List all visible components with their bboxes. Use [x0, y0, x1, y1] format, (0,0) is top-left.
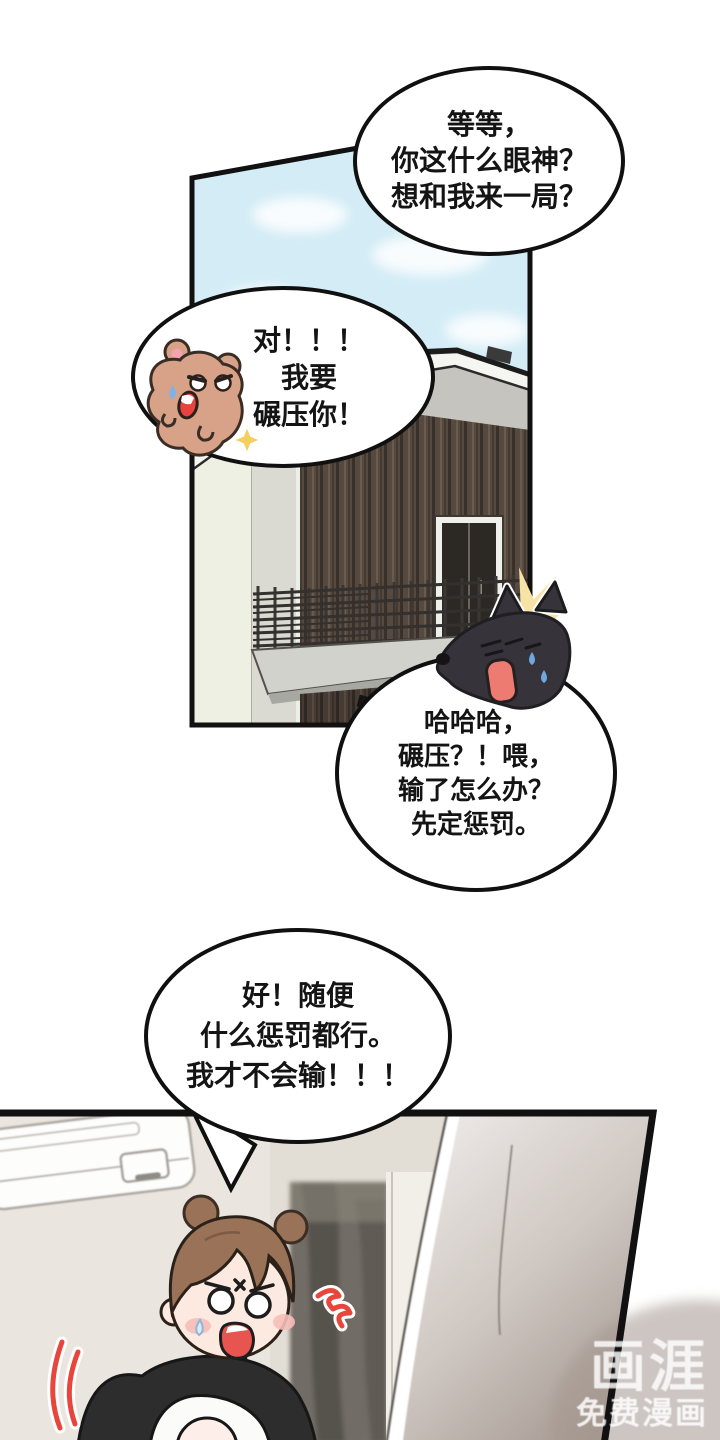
- eye: [209, 1289, 233, 1313]
- speech-bubble-bottom: 好！随便 什么惩罚都行。 我才不会输！！！: [144, 928, 452, 1144]
- bubble-line: 想和我来一局？: [391, 179, 587, 215]
- bubble-line: 好！随便: [242, 976, 354, 1016]
- dog-character: [430, 560, 595, 720]
- bubble-line: 什么惩罚都行。: [200, 1016, 396, 1056]
- bubble-line: 我要: [281, 359, 337, 396]
- dog-nose: [436, 653, 450, 665]
- bubble-line: 等等，: [447, 107, 531, 143]
- bubble-line: 碾压？！喂，: [398, 739, 554, 773]
- bubble-line: 我才不会输！！！: [186, 1056, 410, 1096]
- bubble-line: 你这什么眼神？: [391, 143, 587, 179]
- comic-page: { "page": {"width": 720, "height": 1440,…: [0, 0, 720, 1440]
- bubble-line: 先定惩罚。: [411, 807, 541, 841]
- hamster-character: [135, 330, 270, 465]
- tongue: [485, 658, 518, 703]
- pale-wall: [192, 430, 252, 730]
- speech-bubble-top: 等等， 你这什么眼神？ 想和我来一局？: [353, 66, 625, 256]
- bubble-line: 输了怎么办？: [398, 773, 554, 807]
